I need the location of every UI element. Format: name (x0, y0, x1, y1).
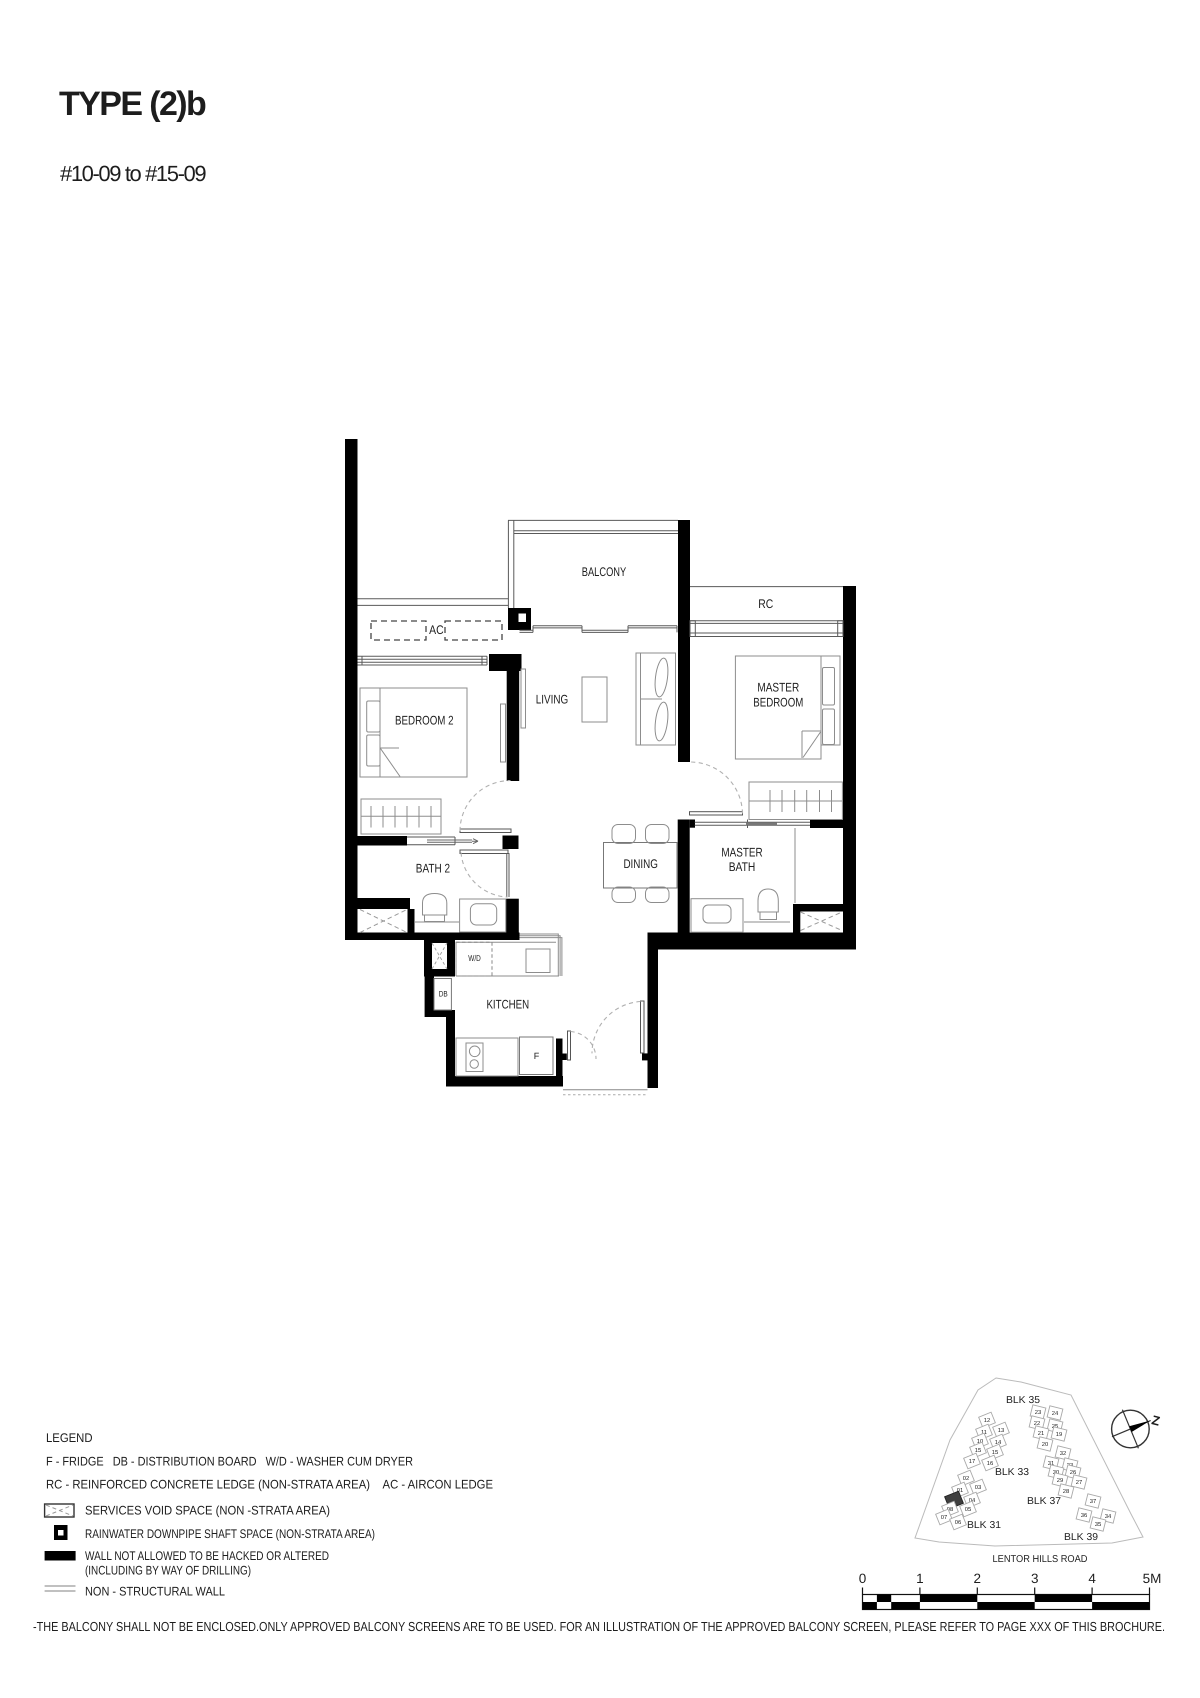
svg-text:5M: 5M (1143, 1571, 1162, 1586)
svg-text:20: 20 (1042, 1441, 1048, 1448)
svg-text:17: 17 (969, 1459, 975, 1465)
svg-text:F - FRIDGE DB - DISTRIBUTION: F - FRIDGE DB - DISTRIBUTION BOARD W/D -… (46, 1455, 413, 1469)
svg-text:W/D: W/D (468, 953, 481, 963)
svg-text:MASTER: MASTER (757, 681, 799, 695)
svg-text:F: F (534, 1051, 540, 1061)
svg-text:BLK 37: BLK 37 (1027, 1496, 1061, 1507)
svg-text:BEDROOM: BEDROOM (753, 696, 803, 710)
svg-text:06: 06 (955, 1519, 961, 1526)
svg-text:23: 23 (1035, 1409, 1041, 1416)
svg-text:#10-09 to #15-09: #10-09 to #15-09 (60, 161, 206, 186)
svg-text:-THE BALCONY SHALL NOT BE ENCL: -THE BALCONY SHALL NOT BE ENCLOSED.ONLY … (33, 1619, 1165, 1634)
svg-text:TYPE (2)b: TYPE (2)b (59, 85, 206, 123)
svg-text:4: 4 (1088, 1571, 1096, 1586)
svg-text:LEGEND: LEGEND (46, 1431, 93, 1445)
svg-text:BLK 31: BLK 31 (967, 1520, 1001, 1531)
svg-text:13: 13 (998, 1427, 1004, 1434)
svg-text:27: 27 (1076, 1479, 1082, 1486)
svg-text:KITCHEN: KITCHEN (486, 998, 529, 1012)
svg-text:05: 05 (965, 1506, 971, 1513)
svg-text:19: 19 (1056, 1431, 1062, 1438)
svg-text:BLK 35: BLK 35 (1006, 1395, 1040, 1406)
svg-text:RC: RC (758, 597, 773, 611)
svg-text:BATH: BATH (729, 860, 756, 874)
svg-text:RAINWATER DOWNPIPE SHAFT SPACE: RAINWATER DOWNPIPE SHAFT SPACE (NON-STRA… (85, 1527, 375, 1541)
svg-text:35: 35 (1095, 1521, 1101, 1528)
svg-text:(INCLUDING BY WAY OF DRILLING): (INCLUDING BY WAY OF DRILLING) (85, 1564, 251, 1578)
svg-text:2: 2 (974, 1571, 982, 1586)
svg-text:LENTOR HILLS ROAD: LENTOR HILLS ROAD (993, 1554, 1088, 1565)
svg-text:AC: AC (429, 623, 444, 637)
svg-text:34: 34 (1105, 1513, 1112, 1520)
svg-text:37: 37 (1090, 1498, 1096, 1505)
svg-text:15: 15 (992, 1450, 998, 1456)
svg-text:29: 29 (1057, 1477, 1063, 1484)
svg-text:SERVICES VOID SPACE (NON -STRA: SERVICES VOID SPACE (NON -STRATA AREA) (85, 1504, 330, 1518)
svg-text:RC - REINFORCED CONCRETE LEDGE: RC - REINFORCED CONCRETE LEDGE (NON-STRA… (46, 1478, 493, 1492)
svg-text:28: 28 (1063, 1488, 1069, 1495)
svg-text:1: 1 (916, 1571, 924, 1586)
svg-text:03: 03 (975, 1484, 981, 1491)
svg-text:16: 16 (987, 1460, 993, 1467)
svg-text:BATH 2: BATH 2 (416, 862, 450, 876)
svg-text:LIVING: LIVING (536, 692, 569, 706)
svg-text:BLK 33: BLK 33 (995, 1467, 1029, 1478)
svg-text:36: 36 (1081, 1512, 1087, 1519)
svg-text:12: 12 (984, 1417, 990, 1424)
svg-text:DINING: DINING (623, 857, 658, 871)
svg-text:3: 3 (1031, 1571, 1039, 1586)
svg-text:0: 0 (859, 1571, 867, 1586)
svg-text:02: 02 (963, 1475, 969, 1482)
svg-text:BALCONY: BALCONY (582, 565, 627, 579)
svg-text:MASTER: MASTER (721, 846, 762, 860)
svg-text:07: 07 (941, 1514, 947, 1521)
svg-text:BLK 39: BLK 39 (1064, 1532, 1098, 1543)
svg-text:DB: DB (439, 990, 448, 999)
svg-text:WALL NOT ALLOWED TO BE HACKED: WALL NOT ALLOWED TO BE HACKED OR ALTERED (85, 1549, 329, 1563)
svg-text:BEDROOM 2: BEDROOM 2 (395, 714, 454, 728)
svg-text:21: 21 (1038, 1430, 1044, 1437)
svg-text:24: 24 (1052, 1410, 1059, 1417)
svg-text:NON - STRUCTURAL WALL: NON - STRUCTURAL WALL (85, 1585, 225, 1599)
svg-text:32: 32 (1060, 1450, 1066, 1457)
